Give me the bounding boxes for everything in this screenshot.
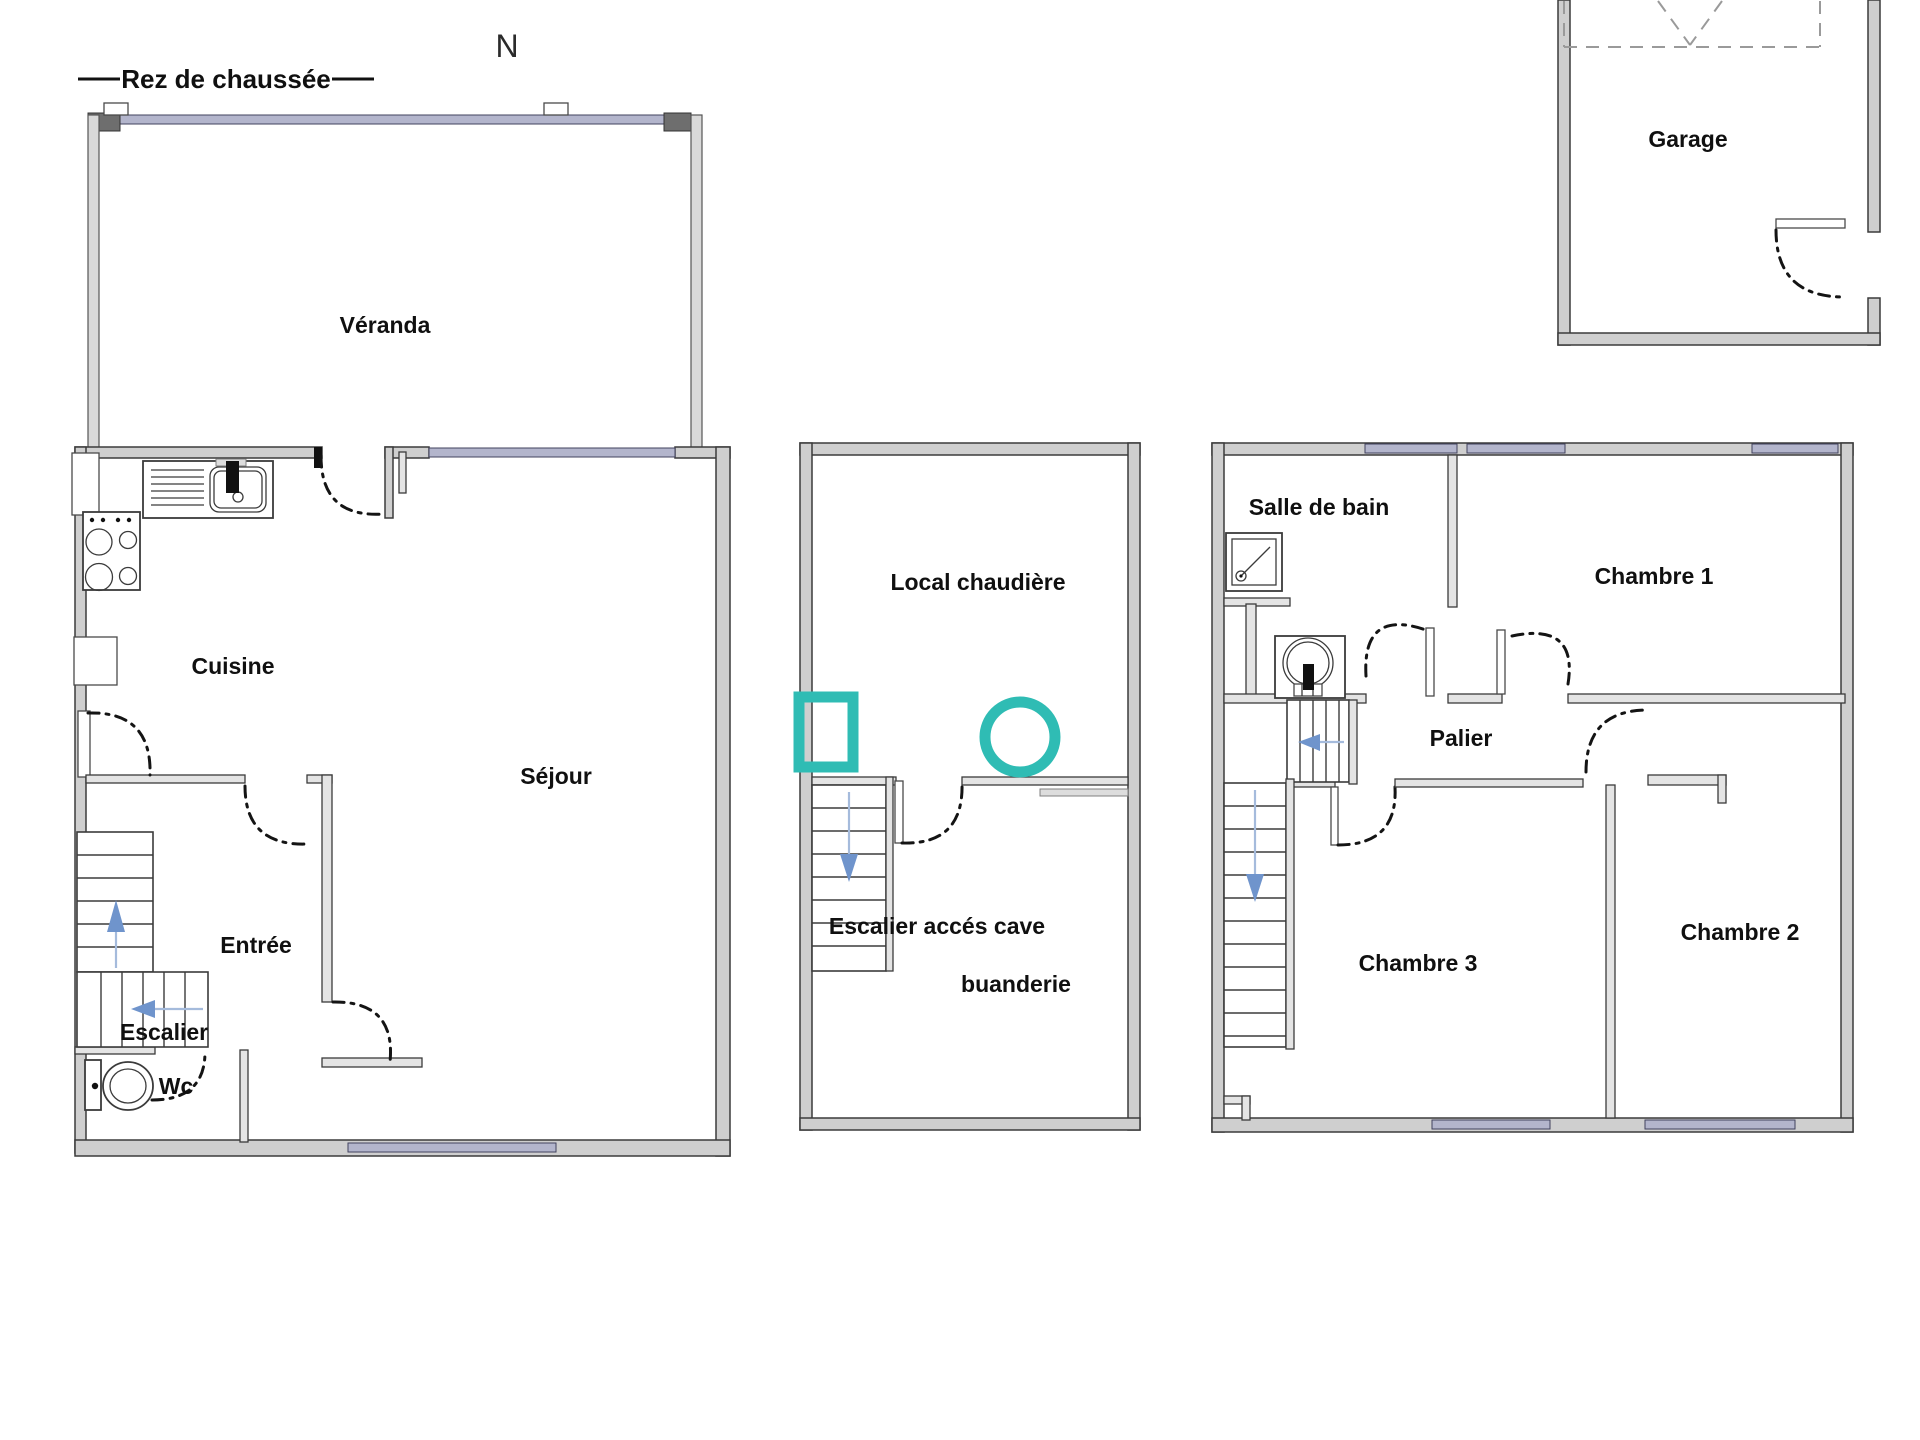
floorplan-svg: Rez de chaussée N — [0, 0, 1920, 1440]
room-label-buanderie: buanderie — [961, 971, 1071, 997]
veranda-pillar-notch — [104, 103, 128, 115]
wall — [86, 775, 245, 783]
window — [348, 1143, 556, 1152]
wall — [962, 777, 1128, 785]
room-label-entree: Entrée — [220, 932, 292, 958]
garage-door-icon — [1564, 1, 1820, 47]
room-label-cuisine: Cuisine — [191, 653, 274, 679]
wall — [800, 443, 1140, 455]
stove-icon — [83, 512, 140, 591]
wall — [1448, 694, 1502, 703]
wall — [1606, 785, 1615, 1118]
door-swing-arc — [1512, 633, 1569, 684]
door-swing-arc — [1366, 625, 1426, 676]
window — [1467, 444, 1565, 453]
wall — [1868, 0, 1880, 232]
door-swing-arc — [1586, 710, 1648, 772]
staircase-ground — [77, 832, 208, 1047]
wall — [1128, 443, 1140, 1130]
room-label-salle-de-bain: Salle de bain — [1249, 494, 1390, 520]
cupboard — [74, 637, 117, 685]
wall — [88, 115, 99, 452]
door-leaf — [1497, 630, 1505, 694]
door-swing-arc — [902, 783, 962, 843]
door-swing-arc — [245, 786, 307, 844]
room-label-wc: Wc — [159, 1073, 194, 1099]
window — [1365, 444, 1457, 453]
room-label-local-chaudiere: Local chaudière — [890, 569, 1065, 595]
wall — [75, 447, 322, 458]
north-indicator: N — [495, 28, 518, 64]
wall — [800, 1118, 1140, 1130]
wall-fin — [385, 447, 393, 518]
wall — [1841, 443, 1853, 1132]
plan-title: Rez de chaussée — [78, 64, 374, 94]
door-leaf — [1776, 219, 1845, 228]
door-swing-arc — [1776, 230, 1844, 297]
door-swing-arc — [1338, 787, 1395, 845]
room-label-garage: Garage — [1648, 126, 1727, 152]
wall — [1568, 694, 1845, 703]
door-leaf — [895, 781, 903, 843]
toilet-icon — [85, 1060, 153, 1110]
door-swing-arc — [333, 1002, 391, 1062]
wall — [1040, 789, 1128, 796]
room-label-chambre2: Chambre 2 — [1681, 919, 1800, 945]
wall — [1558, 333, 1880, 345]
wall — [1224, 598, 1290, 606]
staircase-first-floor — [1224, 700, 1357, 1049]
window — [72, 453, 99, 515]
wall — [1395, 779, 1583, 787]
wall — [800, 443, 812, 1130]
door-leaf — [1426, 628, 1434, 696]
wall — [1558, 0, 1570, 345]
room-label-sejour: Séjour — [520, 763, 592, 789]
washbasin-icon — [1275, 636, 1345, 698]
wall — [322, 775, 332, 1002]
wall-fin — [399, 452, 406, 493]
room-label-palier: Palier — [1430, 725, 1493, 751]
window — [1432, 1120, 1550, 1129]
wall — [322, 1058, 422, 1067]
plan-garage: Garage — [1558, 0, 1880, 345]
room-label-escalier: Escalier — [120, 1019, 208, 1045]
wall — [75, 1047, 155, 1054]
boiler-icon — [985, 702, 1055, 772]
plan-first-floor: Salle de bain Chambre 1 Palier Chambre 3… — [1212, 443, 1853, 1132]
wall — [691, 115, 702, 452]
page-title: Rez de chaussée — [121, 64, 331, 94]
kitchen-sink-icon — [143, 459, 273, 518]
wall — [1648, 775, 1726, 785]
window — [1645, 1120, 1795, 1129]
room-label-chambre3: Chambre 3 — [1359, 950, 1478, 976]
door-leaf — [1331, 787, 1338, 845]
veranda-corner-post — [664, 113, 691, 131]
wall — [240, 1050, 248, 1142]
wall — [812, 777, 896, 785]
wall — [716, 447, 730, 1156]
room-label-escalier-acces-cave: Escalier accés cave — [829, 913, 1045, 939]
floorplan-canvas: Rez de chaussée N — [0, 0, 1920, 1440]
door-swing-arc — [321, 456, 383, 514]
veranda-glazed-wall — [100, 115, 691, 124]
wall — [1242, 1096, 1250, 1120]
wall — [1448, 455, 1457, 607]
shower-icon — [1226, 533, 1282, 591]
staircase-cellar — [812, 777, 893, 971]
plan-annex: Local chaudière Escalier accés cave buan… — [799, 443, 1140, 1130]
room-label-chambre1: Chambre 1 — [1595, 563, 1714, 589]
room-label-veranda: Véranda — [340, 312, 431, 338]
plan-ground-floor: Véranda Cuisine Séjour Entrée Escalier W… — [72, 103, 730, 1156]
wall — [1246, 604, 1256, 702]
window — [1752, 444, 1838, 453]
door-swing-arc — [88, 713, 150, 775]
door-leaf — [78, 711, 90, 777]
wall — [1212, 443, 1224, 1132]
wall — [1718, 775, 1726, 803]
veranda-pillar-notch — [544, 103, 568, 115]
window — [429, 448, 675, 457]
